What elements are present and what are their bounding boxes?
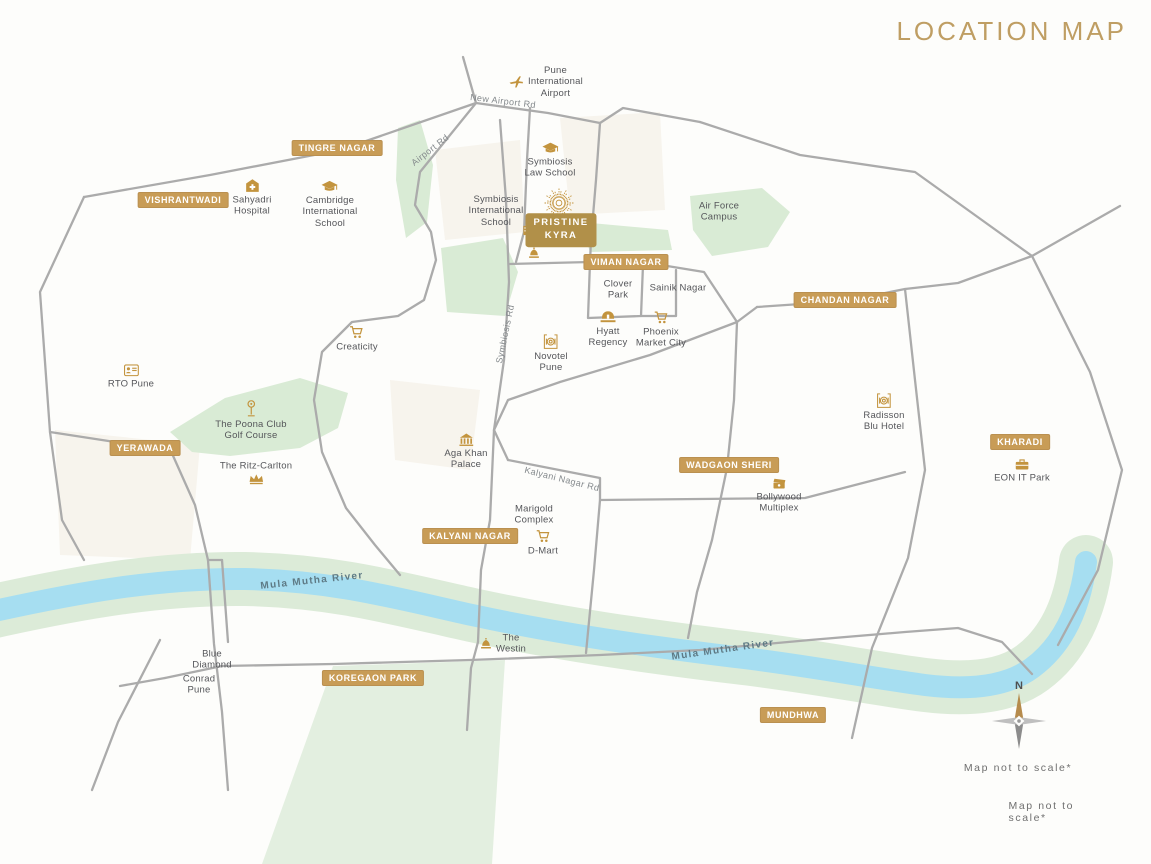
label-line: Park	[604, 290, 633, 301]
label-line: School	[469, 217, 524, 228]
label-line: Campus	[699, 212, 739, 223]
airplane-icon	[509, 75, 524, 89]
label-line: Regency	[589, 338, 628, 349]
bed-icon	[601, 311, 616, 324]
area-badge-chandan-nagar: CHANDAN NAGAR	[794, 292, 897, 308]
label-line: Pune	[183, 685, 215, 696]
the-westin-label: TheWestin	[496, 633, 526, 656]
landmark-aga-khan-palace: Aga KhanPalace	[444, 433, 487, 471]
label-line: Palace	[444, 460, 487, 471]
location-map-canvas: LOCATION MAP	[0, 0, 1151, 864]
landmark-rto-pune: RTO Pune	[108, 364, 154, 389]
crown-icon	[248, 474, 263, 486]
label-line: Cambridge	[303, 195, 358, 206]
label-line: Airport	[528, 88, 583, 99]
compass-north-label: N	[1015, 680, 1023, 692]
label-line: RTO Pune	[108, 378, 154, 389]
landmark-symbiosis-law-school: SymbiosisLaw School	[524, 143, 575, 180]
landmark-temple-dome	[528, 247, 540, 259]
label-line: Phoenix	[636, 327, 686, 338]
hospital-icon	[245, 179, 259, 193]
the-poona-club-golf-course-label: The Poona ClubGolf Course	[215, 419, 286, 442]
label-line: School	[303, 218, 358, 229]
bollywood-multiplex-label: BollywoodMultiplex	[756, 492, 801, 515]
hyatt-regency-label: HyattRegency	[589, 326, 628, 349]
road	[688, 322, 737, 638]
area-badge-tingre-nagar: TINGRE NAGAR	[292, 140, 383, 156]
landmark-sahyadri-hospital: SahyadriHospital	[232, 179, 271, 218]
symbiosis-international-school-label: SymbiosisInternationalSchool	[469, 194, 524, 228]
area-badge-viman-nagar: VIMAN NAGAR	[583, 254, 668, 270]
landmark-pristine-kyra: PRISTINEKYRA	[525, 213, 596, 247]
label-line: Novotel	[534, 351, 568, 362]
road	[120, 678, 165, 686]
label-line: Hospital	[232, 206, 271, 217]
landmark-radisson-blu-hotel: RadissonBlu Hotel	[863, 393, 904, 433]
school-icon	[322, 181, 338, 193]
label-line: Marigold	[515, 504, 554, 515]
phoenix-market-city-label: PhoenixMarket City	[636, 327, 686, 350]
landmark-hyatt-regency: HyattRegency	[589, 311, 628, 349]
label-line: EON IT Park	[994, 472, 1050, 483]
sahyadri-hospital-label: SahyadriHospital	[232, 195, 271, 218]
plate-icon	[544, 334, 559, 349]
label-line: Symbiosis	[469, 194, 524, 205]
landmark-symbiosis-international-school: SymbiosisInternationalSchool	[469, 194, 524, 228]
dome-icon	[480, 638, 492, 650]
label-line: Aga Khan	[444, 448, 487, 459]
label-line: International	[469, 205, 524, 216]
cart-icon	[535, 529, 550, 543]
sainik-nagar-label: Sainik Nagar	[650, 282, 707, 293]
label-line: Bollywood	[756, 492, 801, 503]
label-line: Sahyadri	[232, 195, 271, 206]
label-line: KYRA	[533, 230, 588, 243]
landmark-bollywood-multiplex: BollywoodMultiplex	[756, 478, 801, 515]
label-line: Hyatt	[589, 326, 628, 337]
area-badge-wadgaon-sheri: WADGAON SHERI	[679, 457, 779, 473]
landmark-the-westin: TheWestin	[480, 633, 526, 656]
clapper-icon	[772, 478, 786, 490]
area-badge-mundhwa: MUNDHWA	[760, 707, 826, 723]
label-line: The Ritz-Carlton	[220, 460, 292, 471]
landmark-conrad-pune: ConradPune	[183, 674, 215, 697]
compass-star-icon	[990, 693, 1048, 749]
rto-pune-label: RTO Pune	[108, 378, 154, 389]
conrad-pune-label: ConradPune	[183, 674, 215, 697]
idcard-icon	[123, 364, 138, 376]
area-badge-koregaon-park: KOREGAON PARK	[322, 670, 424, 686]
label-line: Multiplex	[756, 503, 801, 514]
landmark-clover-park: CloverPark	[604, 279, 633, 302]
label-line: Diamond	[192, 660, 231, 671]
area-badge-vishrantwadi: VISHRANTWADI	[138, 192, 229, 208]
landmark-phoenix-market-city: PhoenixMarket City	[636, 311, 686, 350]
eon-it-park-label: EON IT Park	[994, 472, 1050, 483]
novotel-pune-label: NovotelPune	[534, 351, 568, 374]
label-line: Blue	[192, 649, 231, 660]
label-line: The Poona Club	[215, 419, 286, 430]
palace-icon	[458, 433, 474, 446]
label-line: Law School	[524, 168, 575, 179]
pristine-kyra-label: PRISTINEKYRA	[525, 213, 596, 247]
label-line: Westin	[496, 644, 526, 655]
map-not-to-scale-note: Map not to scale*	[964, 762, 1072, 774]
landmark-eon-it-park: EON IT Park	[994, 458, 1050, 483]
label-line: International	[303, 206, 358, 217]
landmark-marigold-complex: MarigoldComplex	[515, 504, 554, 527]
label-line: The	[496, 633, 526, 644]
road	[1032, 206, 1120, 256]
label-line: Air Force	[699, 201, 739, 212]
compass-rose: N	[990, 680, 1048, 749]
clover-park-label: CloverPark	[604, 279, 633, 302]
label-line: International	[528, 76, 583, 87]
label-line: Clover	[604, 279, 633, 290]
dome-icon	[528, 247, 540, 259]
creaticity-label: Creaticity	[336, 341, 378, 352]
plate-icon	[877, 393, 892, 408]
landmark-air-force-campus: Air ForceCampus	[699, 201, 739, 224]
label-line: Pune	[534, 363, 568, 374]
aga-khan-palace-label: Aga KhanPalace	[444, 448, 487, 471]
label-line: D-Mart	[528, 545, 558, 556]
marigold-complex-label: MarigoldComplex	[515, 504, 554, 527]
the-ritz-carlton-label: The Ritz-Carlton	[220, 460, 292, 471]
golf-icon	[245, 400, 257, 417]
road	[92, 640, 160, 790]
landmark-pune-international-airport: PuneInternationalAirport	[509, 65, 583, 99]
label-line: Symbiosis	[524, 157, 575, 168]
area-badge-yerawada: YERAWADA	[110, 440, 181, 456]
area-badge-kharadi: KHARADI	[990, 434, 1050, 450]
landmark-blue-diamond: BlueDiamond	[192, 649, 231, 672]
landmark-cambridge-international-school: CambridgeInternationalSchool	[303, 181, 358, 229]
label-line: PRISTINE	[533, 217, 588, 230]
label-line: Blu Hotel	[863, 422, 904, 433]
label-line: Sainik Nagar	[650, 282, 707, 293]
label-line: Market City	[636, 338, 686, 349]
d-mart-label: D-Mart	[528, 545, 558, 556]
area-badge-kalyani-nagar: KALYANI NAGAR	[422, 528, 518, 544]
landmark-novotel-pune: NovotelPune	[534, 334, 568, 374]
symbiosis-law-school-label: SymbiosisLaw School	[524, 157, 575, 180]
radisson-blu-hotel-label: RadissonBlu Hotel	[863, 410, 904, 433]
cart-icon	[350, 325, 365, 339]
label-line: Golf Course	[215, 431, 286, 442]
landmark-creaticity: Creaticity	[336, 325, 378, 352]
land-patch	[396, 120, 433, 238]
cambridge-international-school-label: CambridgeInternationalSchool	[303, 195, 358, 229]
cart-icon	[653, 311, 668, 325]
label-line: Creaticity	[336, 341, 378, 352]
label-line: Radisson	[863, 410, 904, 421]
school-icon	[542, 143, 558, 155]
map-graphic	[0, 0, 1151, 864]
label-line: Pune	[528, 65, 583, 76]
briefcase-icon	[1015, 458, 1029, 470]
pune-international-airport-label: PuneInternationalAirport	[528, 65, 583, 99]
blue-diamond-label: BlueDiamond	[192, 649, 231, 672]
landmark-the-poona-club-golf-course: The Poona ClubGolf Course	[215, 400, 286, 442]
landmark-sainik-nagar: Sainik Nagar	[650, 282, 707, 293]
label-line: Conrad	[183, 674, 215, 685]
air-force-campus-label: Air ForceCampus	[699, 201, 739, 224]
label-line: Complex	[515, 515, 554, 526]
landmark-d-mart: D-Mart	[528, 529, 558, 556]
map-not-to-scale-note-2: Map not to scale*	[1009, 800, 1104, 824]
landmark-the-ritz-carlton: The Ritz-Carlton	[220, 460, 292, 485]
